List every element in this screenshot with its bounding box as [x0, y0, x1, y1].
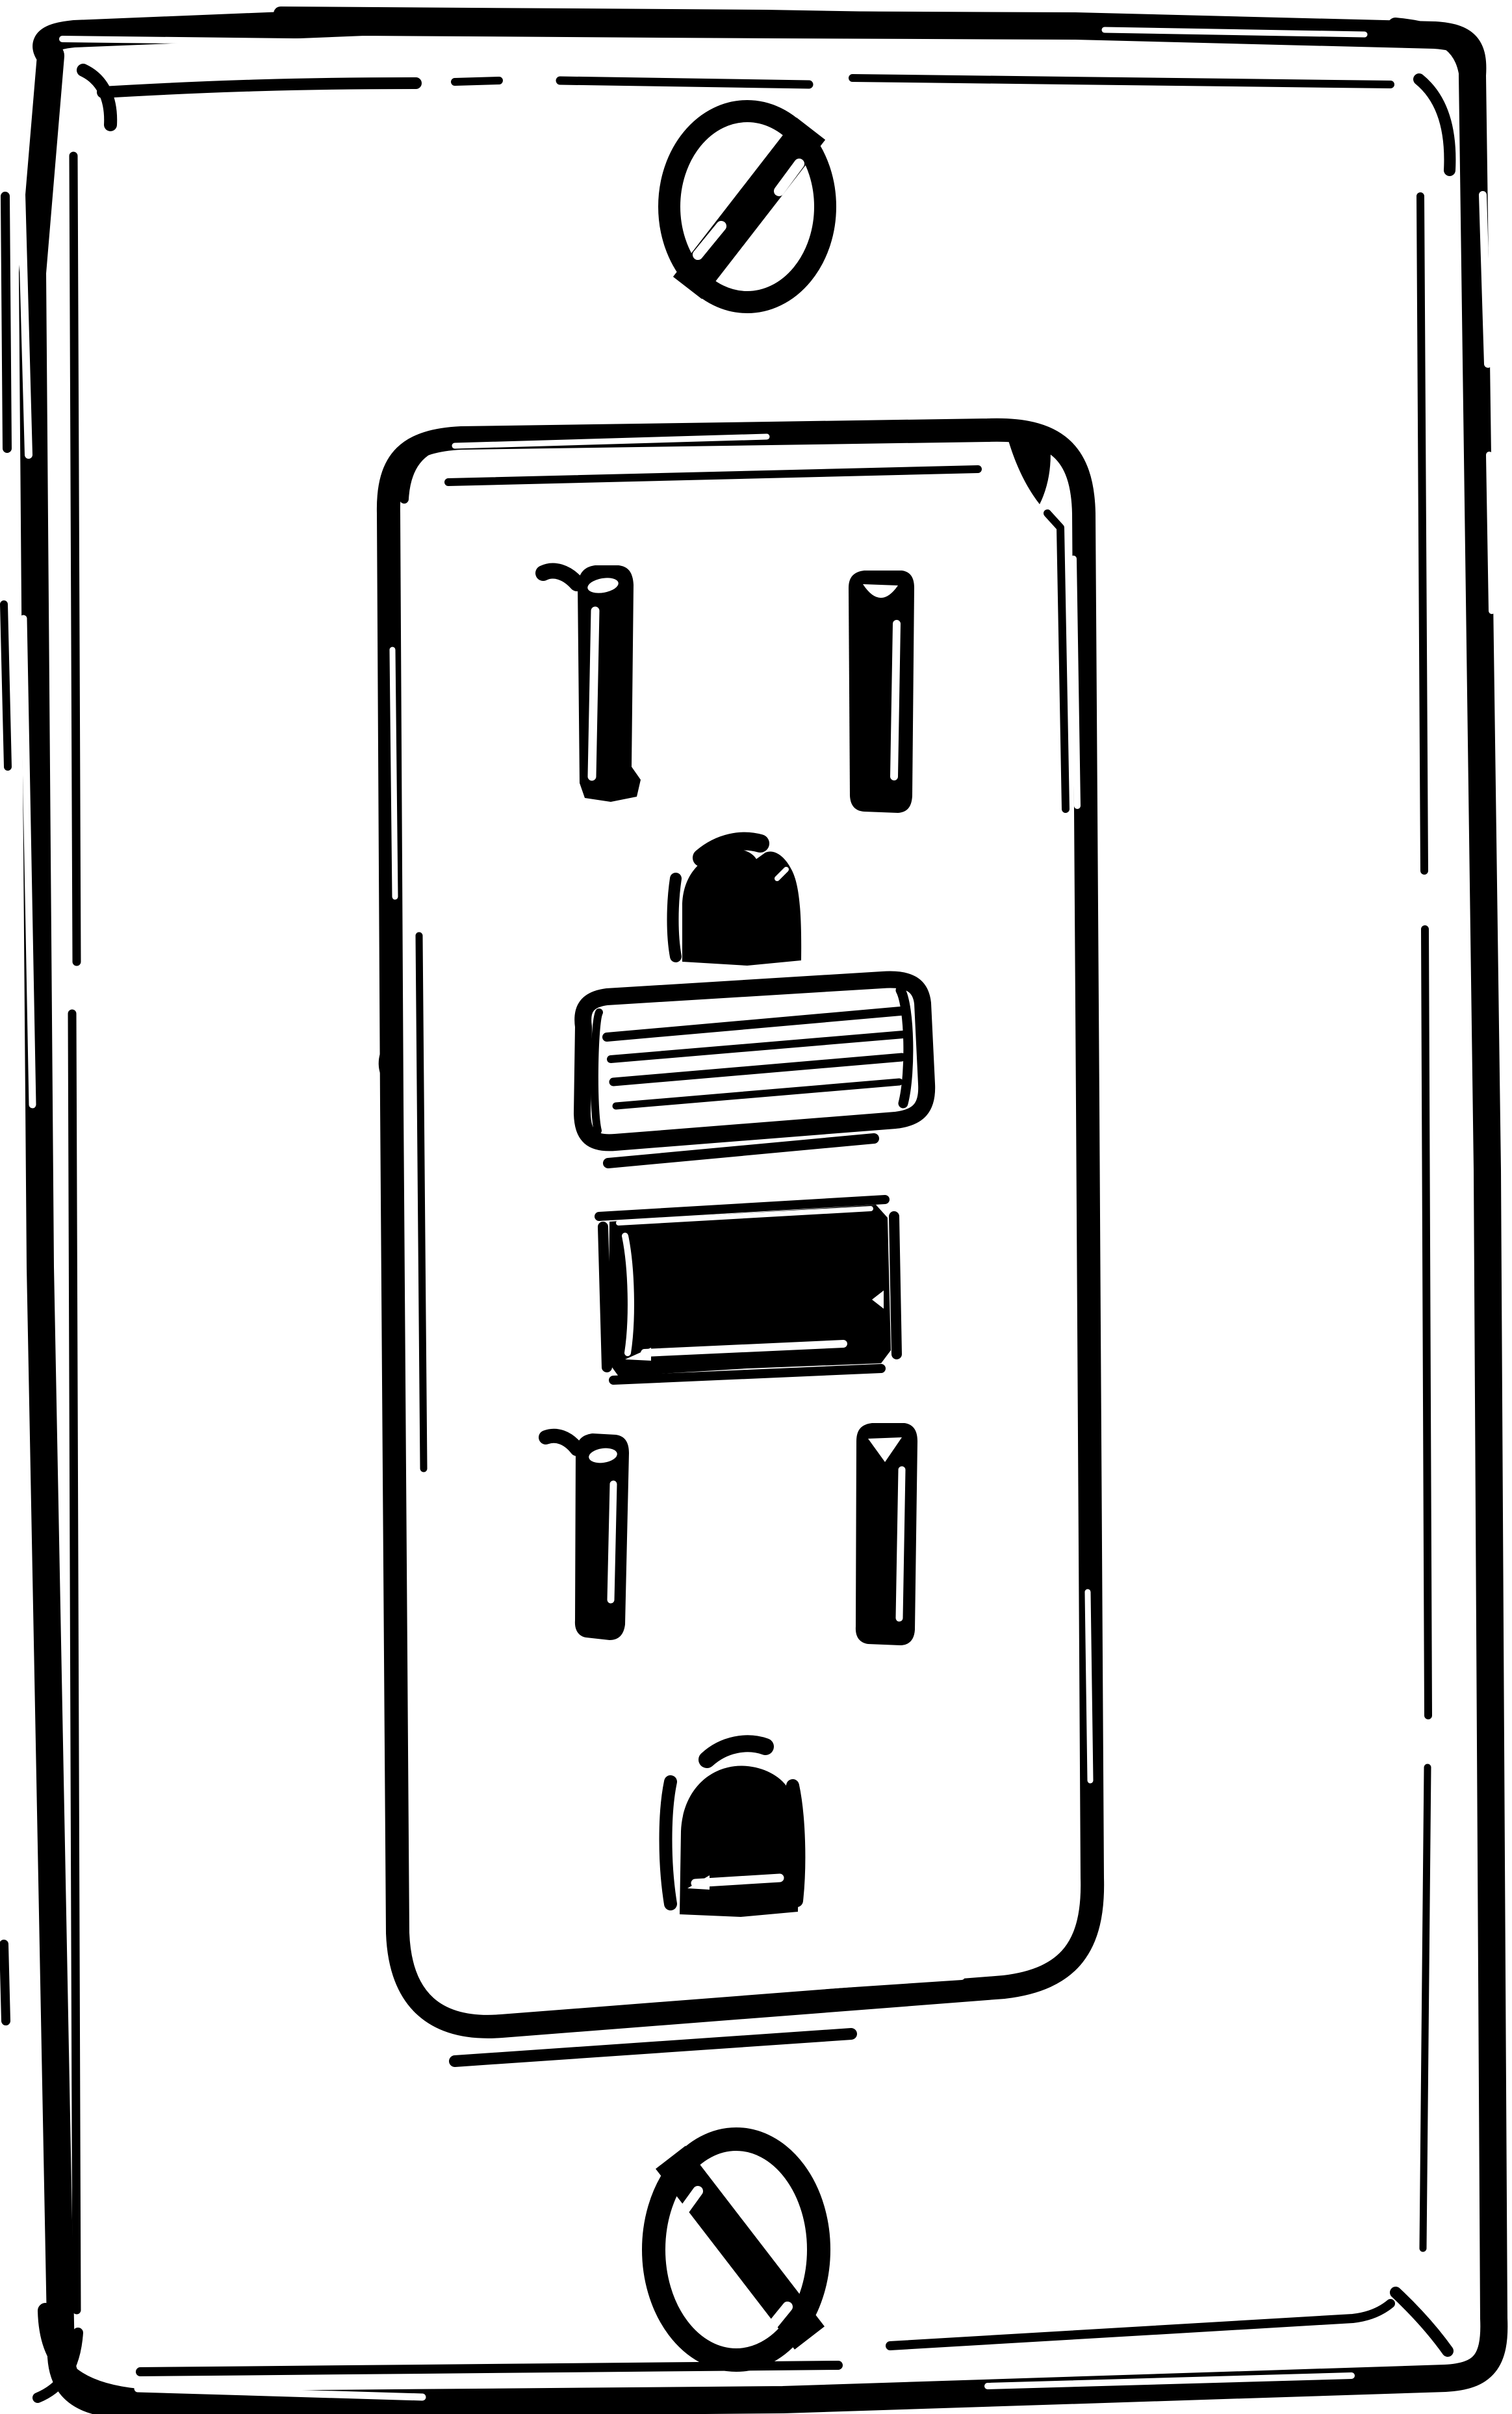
- gfci-outlet-sketch-image: Hand-drawn black ink sketch of a decora-…: [0, 0, 1512, 2414]
- bottom-hot-slot: [856, 1423, 917, 1645]
- face-right-gap: [1073, 559, 1077, 806]
- top-hot-slot-icon: [849, 571, 914, 813]
- face-left-edge-jog: [385, 1047, 391, 1080]
- test-button-outline-left: [603, 1227, 607, 1367]
- top-neutral-slot-icon: [578, 565, 641, 802]
- inner-line-right-3: [1423, 1767, 1428, 2248]
- illustration-stage: Hand-drawn black ink sketch of a decora-…: [0, 0, 1512, 2414]
- top-neutral-slot-sliver: [592, 611, 595, 777]
- inner-line-right-2: [1425, 929, 1428, 1715]
- edge-mark-1: [5, 196, 7, 448]
- bottom-ground-hole-icon: [680, 1766, 798, 1917]
- top-hot-slot: [849, 571, 914, 813]
- top-ground-hole-icon: [682, 849, 801, 966]
- face-left-gap: [392, 650, 395, 897]
- plate-highlight-gap-right-1: [1483, 195, 1488, 364]
- bottom-neutral-slot-icon: [575, 1433, 629, 1640]
- inner-line-left-1: [73, 156, 77, 962]
- edge-mark-3: [4, 1944, 6, 2021]
- inner-line-left-2: [72, 1014, 77, 2310]
- bottom-ground-left-ear: [666, 1782, 671, 1904]
- bottom-neutral-slot-sliver: [611, 1484, 613, 1600]
- plate-highlight-gap-right-2: [1489, 455, 1492, 611]
- top-hot-slot-sliver: [894, 624, 897, 777]
- test-button-outline-right: [894, 1216, 897, 1354]
- top-ground-left-ear: [673, 879, 676, 957]
- face-left-inner-line: [419, 936, 424, 1469]
- bottom-hot-slot-sliver: [899, 1470, 902, 1618]
- plate-top-extra-stroke: [281, 14, 1064, 22]
- plate-highlight-gap-top-left: [62, 39, 403, 43]
- bottom-ground-right-ear: [793, 1786, 799, 1901]
- test-button: [599, 1200, 897, 1380]
- edge-mark-2: [4, 604, 8, 767]
- inner-line-top-2: [455, 81, 499, 82]
- face-right-lower-gap: [1088, 1592, 1090, 1780]
- inner-line-top-3: [560, 81, 809, 84]
- inner-line-right-1: [1420, 196, 1424, 871]
